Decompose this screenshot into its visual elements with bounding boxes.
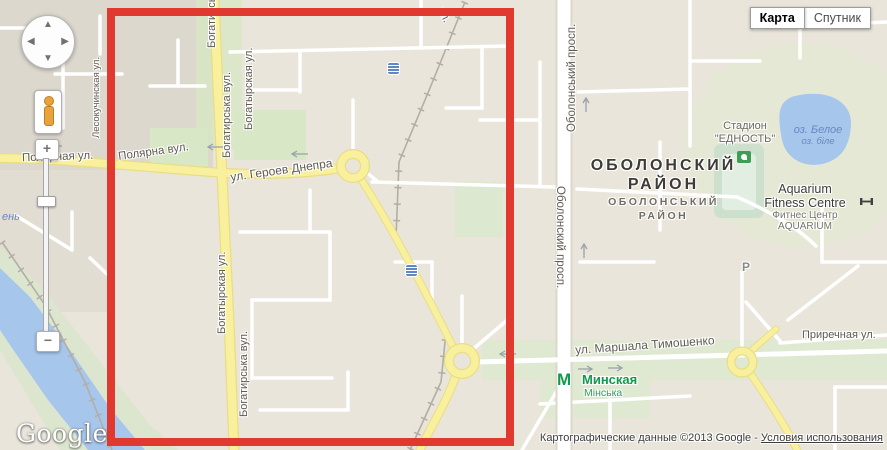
metro-station-label-ua: Мінська xyxy=(584,387,622,399)
stadium-label-line2: "ЕДНОСТЬ" xyxy=(703,133,787,146)
aquarium-label-line1: Aquarium xyxy=(752,182,858,196)
aquarium-poi-label: Aquarium Fitness Centre Фитнес Центр AQU… xyxy=(752,182,858,232)
pegman-icon[interactable] xyxy=(44,96,54,106)
fitness-icon xyxy=(860,194,873,212)
pan-down-arrow-icon[interactable]: ▼ xyxy=(43,54,53,64)
aquarium-label-sub1: Фитнес Центр xyxy=(752,210,858,221)
pegman-control[interactable] xyxy=(34,90,62,134)
pan-control[interactable]: ▲ ▼ ◀ ▶ xyxy=(21,15,75,69)
pan-right-arrow-icon[interactable]: ▶ xyxy=(61,37,69,47)
map-viewport[interactable]: Полярная ул. Полярна вул. ул. Героев Дне… xyxy=(0,0,887,450)
street-label-obolonsky-ua: Оболонський просп. xyxy=(566,24,578,132)
district-name-ua-line2: РАЙОН xyxy=(581,210,746,222)
terms-of-use-link[interactable]: Условия использования xyxy=(761,432,883,444)
pan-left-arrow-icon[interactable]: ◀ xyxy=(27,37,35,47)
parking-icon: Р xyxy=(742,260,750,274)
stadium-icon xyxy=(737,151,751,163)
map-type-control: Карта Спутник xyxy=(750,7,871,29)
attribution-bar: Картографические данные ©2013 Google - У… xyxy=(540,432,883,444)
street-label-lesokuchinskaya: Лесокучинская ул. xyxy=(91,57,102,138)
lake-label-ua: оз. біле xyxy=(788,136,848,148)
district-name-ru-line1: ОБОЛОНСКИЙ xyxy=(581,156,746,175)
pan-up-arrow-icon[interactable]: ▲ xyxy=(43,20,53,30)
metro-station-label-ru: Минская xyxy=(582,372,637,387)
aquarium-label-line2: Fitness Centre xyxy=(752,196,858,210)
zoom-slider-track[interactable] xyxy=(43,158,49,334)
aquarium-label-sub2: AQUARIUM xyxy=(752,221,858,232)
zoom-slider-handle[interactable] xyxy=(37,196,56,207)
map-type-button-satellite[interactable]: Спутник xyxy=(804,7,871,29)
district-name-ru-line2: РАЙОН xyxy=(581,175,746,194)
zoom-out-button[interactable]: − xyxy=(36,331,60,352)
street-label-prirechnaya: Приречная ул. xyxy=(802,329,876,341)
street-label-obolonsky-ru: Оболонский просп. xyxy=(554,186,566,288)
map-type-button-map[interactable]: Карта xyxy=(750,7,805,29)
zoom-in-button[interactable]: + xyxy=(35,139,59,160)
district-label: ОБОЛОНСКИЙ РАЙОН ОБОЛОНСЬКИЙ РАЙОН xyxy=(581,156,746,222)
lake-label: оз. Белое оз. біле xyxy=(788,124,848,148)
district-name-ua-line1: ОБОЛОНСЬКИЙ xyxy=(581,196,746,208)
selection-rectangle-overlay xyxy=(107,8,514,446)
water-label-partial: ень xyxy=(2,211,20,223)
metro-m-icon[interactable]: М xyxy=(557,370,571,390)
stadium-label-line1: Стадион xyxy=(703,120,787,133)
stadium-label: Стадион "ЕДНОСТЬ" xyxy=(703,120,787,146)
google-logo[interactable]: Google xyxy=(16,419,108,448)
attribution-text: Картографические данные ©2013 Google - xyxy=(540,432,761,444)
lake-label-ru: оз. Белое xyxy=(788,124,848,136)
